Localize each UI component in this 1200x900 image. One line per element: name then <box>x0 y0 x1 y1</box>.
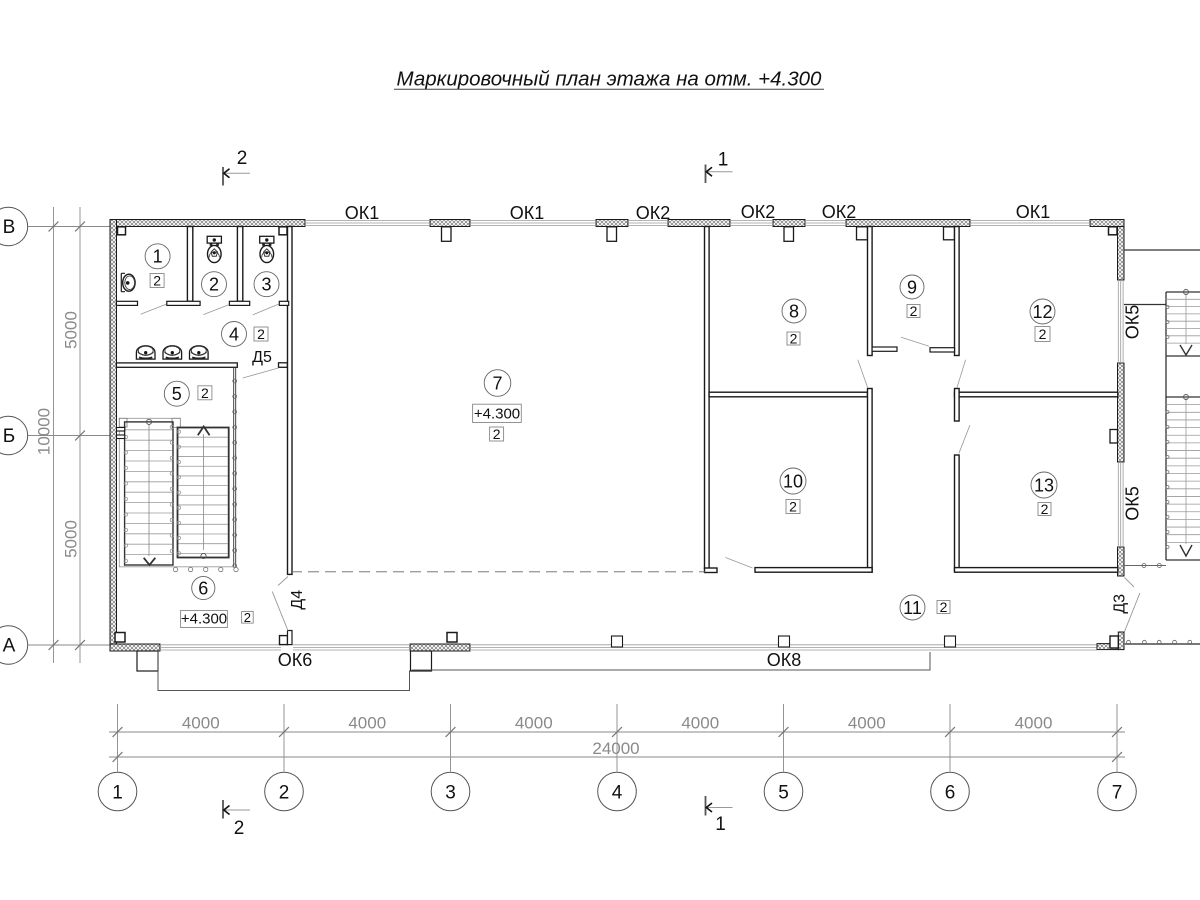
svg-text:24000: 24000 <box>592 739 639 758</box>
svg-text:2: 2 <box>1039 326 1047 342</box>
svg-text:2: 2 <box>209 275 219 295</box>
svg-text:2: 2 <box>279 782 290 803</box>
svg-text:2: 2 <box>237 148 248 169</box>
svg-text:Б: Б <box>3 426 15 447</box>
svg-text:4: 4 <box>229 324 239 344</box>
svg-text:4000: 4000 <box>182 714 220 733</box>
svg-text:2: 2 <box>790 331 798 347</box>
svg-text:ОК2: ОК2 <box>741 202 776 222</box>
svg-text:5000: 5000 <box>62 520 81 558</box>
svg-text:+4.300: +4.300 <box>181 611 227 628</box>
svg-text:ОК6: ОК6 <box>278 650 313 670</box>
svg-text:2: 2 <box>234 818 245 839</box>
svg-text:4000: 4000 <box>1015 714 1053 733</box>
svg-text:ОК1: ОК1 <box>1016 202 1051 222</box>
svg-text:2: 2 <box>153 273 161 289</box>
svg-text:2: 2 <box>244 610 251 625</box>
svg-text:Д3: Д3 <box>1112 594 1129 614</box>
svg-text:4000: 4000 <box>681 714 719 733</box>
svg-text:В: В <box>3 217 16 238</box>
svg-text:10: 10 <box>783 471 803 491</box>
svg-text:ОК1: ОК1 <box>345 203 380 223</box>
svg-text:Маркировочный план этажа на от: Маркировочный план этажа на отм. +4.300 <box>397 68 822 91</box>
svg-text:ОК2: ОК2 <box>822 202 857 222</box>
svg-text:5: 5 <box>778 782 789 803</box>
svg-text:2: 2 <box>940 599 948 615</box>
svg-text:3: 3 <box>445 782 456 803</box>
svg-text:10000: 10000 <box>35 408 54 455</box>
svg-text:5000: 5000 <box>62 311 81 349</box>
svg-text:13: 13 <box>1034 475 1054 495</box>
svg-text:2: 2 <box>1041 501 1049 517</box>
svg-text:4000: 4000 <box>515 714 553 733</box>
svg-text:+4.300: +4.300 <box>474 406 520 423</box>
svg-text:1: 1 <box>112 782 123 803</box>
svg-text:7: 7 <box>1112 782 1123 803</box>
svg-text:1: 1 <box>153 247 163 267</box>
svg-text:ОК2: ОК2 <box>636 203 671 223</box>
svg-text:Д4: Д4 <box>289 590 306 610</box>
svg-text:ОК8: ОК8 <box>767 650 802 670</box>
svg-text:1: 1 <box>715 814 726 835</box>
svg-text:2: 2 <box>493 426 501 442</box>
svg-text:4000: 4000 <box>848 714 886 733</box>
svg-text:2: 2 <box>910 303 918 319</box>
svg-text:12: 12 <box>1032 302 1052 322</box>
svg-text:4000: 4000 <box>348 714 386 733</box>
svg-text:6: 6 <box>945 782 956 803</box>
svg-text:9: 9 <box>907 277 917 297</box>
svg-text:ОК5: ОК5 <box>1122 486 1142 521</box>
svg-text:5: 5 <box>172 384 182 404</box>
svg-text:2: 2 <box>201 385 209 401</box>
svg-text:6: 6 <box>198 578 208 598</box>
svg-text:ОК1: ОК1 <box>510 203 545 223</box>
svg-text:А: А <box>3 636 16 657</box>
svg-text:4: 4 <box>612 782 623 803</box>
svg-text:7: 7 <box>492 373 502 393</box>
svg-text:Д5: Д5 <box>252 349 272 366</box>
svg-text:8: 8 <box>789 301 799 321</box>
svg-text:1: 1 <box>718 150 729 171</box>
svg-text:2: 2 <box>257 326 265 342</box>
svg-text:ОК5: ОК5 <box>1122 305 1142 340</box>
svg-text:11: 11 <box>903 598 922 618</box>
svg-text:3: 3 <box>261 275 271 295</box>
svg-text:2: 2 <box>789 499 797 515</box>
